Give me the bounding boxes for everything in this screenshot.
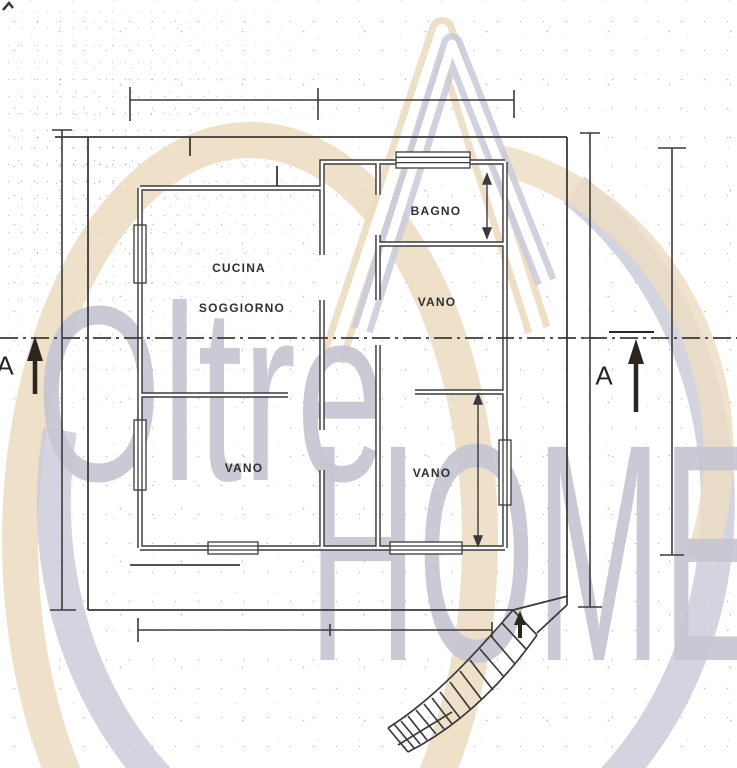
room-label-soggiorno: SOGGIORNO: [199, 301, 285, 315]
room-label-cucina: CUCINA: [212, 261, 266, 275]
floor-plan-scan: Oltre HOME: [0, 0, 737, 768]
window-left-lower: [134, 420, 146, 490]
window-bottom-right: [390, 542, 462, 554]
floor-plan-drawing: Oltre HOME: [0, 0, 737, 768]
window-right-wall: [499, 440, 511, 505]
room-label-bagno: BAGNO: [411, 204, 462, 218]
room-label-vano-right-middle: VANO: [418, 295, 457, 309]
section-label-right: A: [595, 361, 612, 392]
room-label-vano-left-bottom: VANO: [225, 461, 264, 475]
section-label-left: A: [0, 351, 14, 382]
scan-blemish: [3, 3, 13, 10]
window-left-upper: [134, 225, 146, 283]
window-top-corridor: [396, 152, 470, 168]
room-label-vano-right-bottom: VANO: [413, 466, 452, 480]
window-bottom-left: [208, 542, 258, 554]
